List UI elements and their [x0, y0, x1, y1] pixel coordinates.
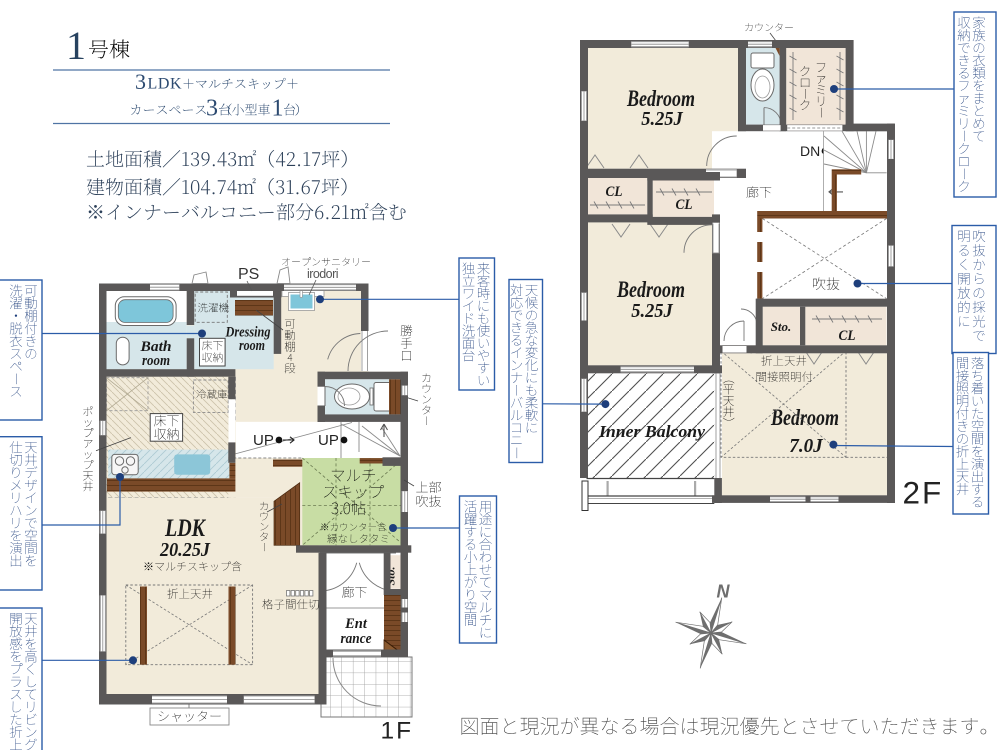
svg-text:LDK: LDK [148, 76, 183, 93]
svg-text:N: N [717, 582, 731, 602]
svg-text:UP: UP [318, 432, 339, 449]
svg-text:Bedroom: Bedroom [770, 405, 839, 430]
svg-text:PS: PS [238, 266, 259, 283]
svg-text:2F: 2F [903, 475, 944, 511]
svg-text:1: 1 [272, 96, 284, 122]
svg-text:Sto.: Sto. [771, 319, 792, 334]
svg-text:Bedroom: Bedroom [616, 277, 685, 302]
svg-text:5.25J: 5.25J [641, 108, 683, 130]
svg-text:rance: rance [341, 631, 373, 647]
svg-text:3: 3 [206, 96, 218, 122]
svg-text:1F: 1F [381, 718, 414, 745]
svg-text:7.0J: 7.0J [789, 435, 823, 457]
svg-text:CL: CL [676, 197, 693, 213]
svg-text:Inner Balcony: Inner Balcony [598, 422, 706, 441]
svg-text:Ent: Ent [344, 616, 368, 632]
svg-text:room: room [239, 338, 265, 354]
svg-text:1: 1 [66, 23, 86, 68]
svg-text:room: room [142, 353, 170, 369]
svg-text:LDK: LDK [164, 515, 207, 542]
svg-text:DN: DN [800, 143, 820, 159]
svg-text:20.25J: 20.25J [159, 539, 211, 561]
svg-text:5.25J: 5.25J [631, 300, 673, 322]
svg-text:CL: CL [606, 184, 623, 200]
svg-text:CL: CL [839, 328, 856, 344]
svg-text:3: 3 [135, 69, 146, 94]
svg-text:irodori: irodori [307, 267, 339, 281]
svg-text:UP: UP [253, 432, 274, 449]
